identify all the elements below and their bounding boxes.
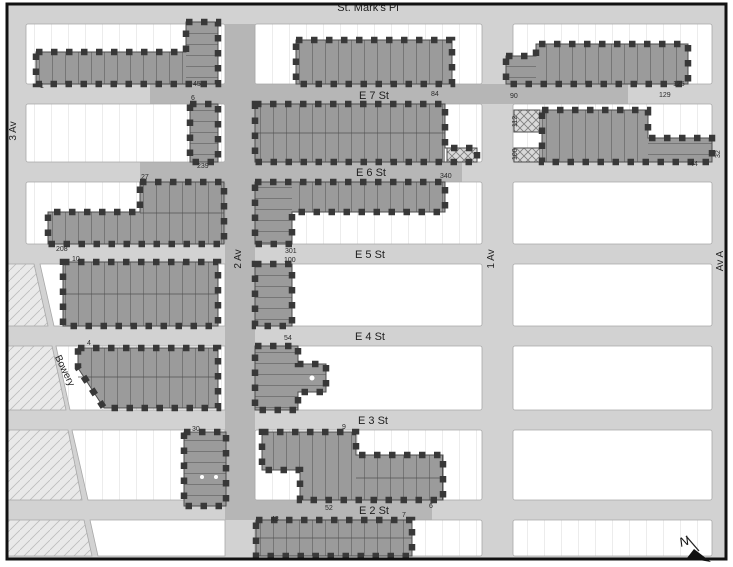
- city-block: [513, 346, 712, 410]
- street-label-e3: E 3 St: [358, 415, 388, 427]
- address-number: 129: [659, 92, 671, 99]
- street-label-e6: E 6 St: [356, 167, 386, 179]
- address-number: 239: [197, 163, 209, 170]
- district-area: [190, 104, 218, 162]
- lot-dot: [214, 475, 218, 479]
- district-area: [78, 348, 218, 408]
- address-number: 7: [402, 512, 406, 519]
- address-number: 32: [715, 150, 722, 158]
- address-number: 100: [284, 257, 296, 264]
- district-area: [36, 52, 186, 84]
- district-area: [255, 264, 292, 326]
- map-canvas: St. Mark's Pl E 7 St E 6 St E 5 St E 4 S…: [0, 0, 733, 567]
- address-number: 208: [56, 246, 68, 253]
- address-number: 43: [271, 516, 279, 523]
- street-label-2av: 2 Av: [233, 249, 244, 268]
- address-number: 45: [193, 81, 201, 88]
- address-number: 54: [284, 335, 292, 342]
- lot-dot: [310, 376, 315, 381]
- street-label-e7: E 7 St: [359, 90, 389, 102]
- lot-dot: [200, 475, 204, 479]
- city-block: [513, 182, 712, 244]
- address-number: 52: [325, 505, 333, 512]
- address-number: 27: [141, 174, 149, 181]
- street-label-e2: E 2 St: [359, 505, 389, 517]
- address-number: 6: [429, 503, 433, 510]
- district-area: [255, 182, 292, 244]
- address-number: 10: [72, 256, 80, 263]
- district-area: [506, 56, 536, 84]
- district-area: [296, 40, 452, 84]
- address-number: 112: [512, 116, 519, 127]
- address-number: 44: [690, 161, 698, 168]
- street-label-3av: 3 Av: [8, 121, 19, 140]
- address-number: 6: [191, 95, 195, 102]
- city-block-west-of-bowery: [8, 520, 92, 556]
- district-area: [186, 22, 218, 84]
- address-number: 340: [440, 173, 452, 180]
- street-label-e4: E 4 St: [355, 331, 385, 343]
- historic-district-map: St. Mark's Pl E 7 St E 6 St E 5 St E 4 S…: [0, 0, 733, 567]
- address-number: 1: [40, 83, 44, 90]
- street-label-e5: E 5 St: [355, 249, 385, 261]
- district-area: [536, 44, 688, 84]
- city-block: [513, 430, 712, 500]
- address-number: 30: [192, 426, 200, 433]
- address-number: 100: [512, 148, 519, 160]
- address-number: 84: [431, 91, 439, 98]
- street-2av-district-segment: [225, 24, 255, 520]
- district-area: [184, 432, 226, 506]
- address-number: 125: [673, 81, 685, 88]
- address-number: 4: [87, 340, 91, 347]
- street-label-av-a: Av A: [715, 250, 726, 271]
- city-block: [90, 520, 225, 556]
- address-number: 9: [342, 424, 346, 431]
- address-number: 90: [510, 93, 518, 100]
- street-label-1av: 1 Av: [486, 249, 497, 268]
- district-area: [648, 138, 712, 162]
- city-block: [513, 264, 712, 326]
- address-number: 301: [285, 248, 297, 255]
